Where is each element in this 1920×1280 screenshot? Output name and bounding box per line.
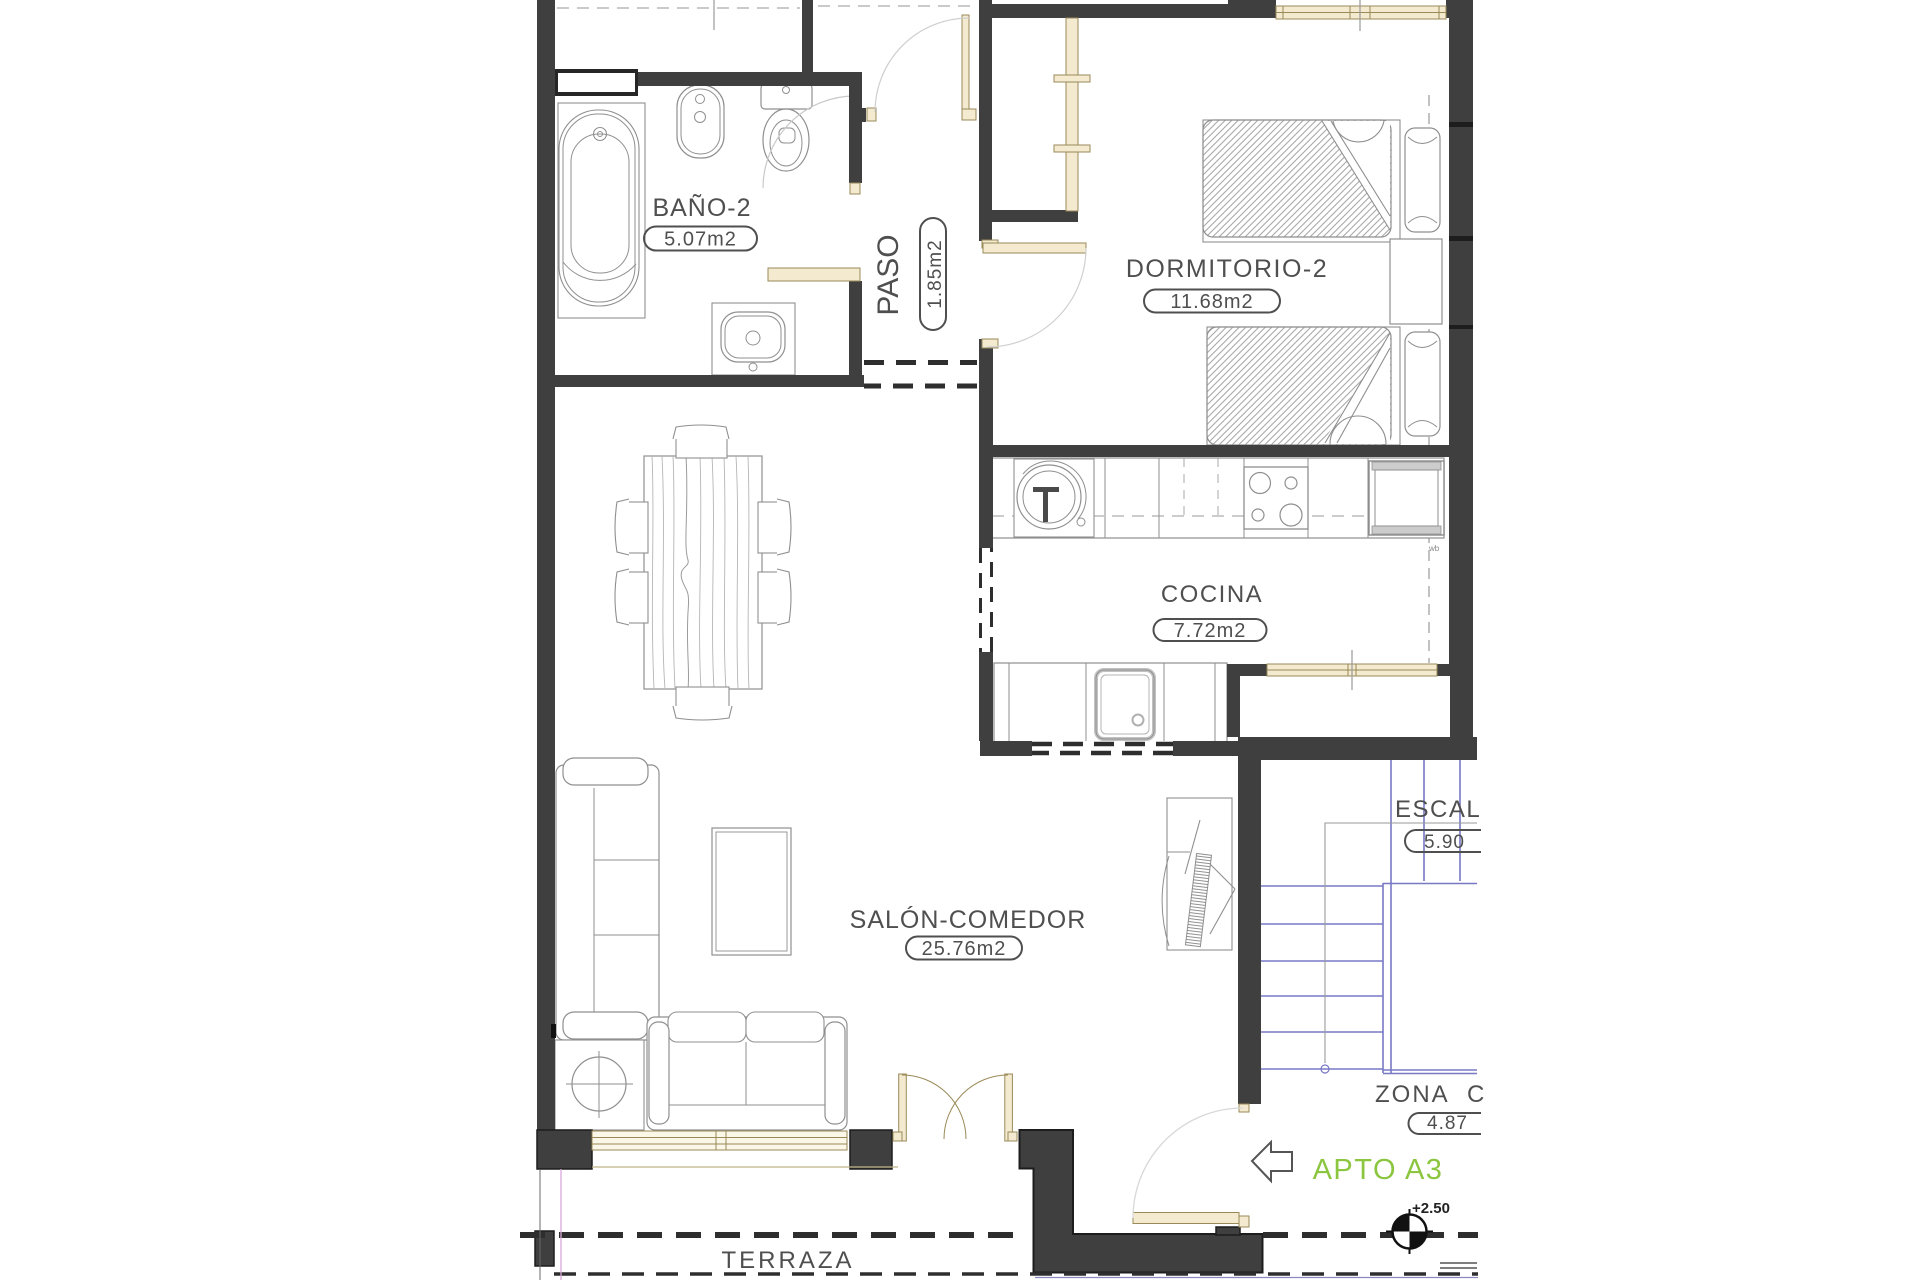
- svg-text:7.72m2: 7.72m2: [1174, 620, 1247, 642]
- svg-text:11.68m2: 11.68m2: [1170, 291, 1253, 313]
- svg-text:BAÑO-2: BAÑO-2: [652, 193, 751, 222]
- svg-text:DORMITORIO-2: DORMITORIO-2: [1126, 255, 1328, 283]
- svg-text:PASO: PASO: [872, 234, 905, 315]
- svg-text:SALÓN-COMEDOR: SALÓN-COMEDOR: [850, 905, 1087, 934]
- svg-text:ZONA C: ZONA C: [1375, 1081, 1486, 1108]
- svg-text:ESCAL: ESCAL: [1395, 796, 1481, 823]
- svg-text:APTO A3: APTO A3: [1313, 1154, 1444, 1186]
- svg-text:wb: wb: [1428, 544, 1440, 553]
- svg-text:+2.50: +2.50: [1412, 1200, 1450, 1217]
- svg-text:TERRAZA: TERRAZA: [721, 1247, 854, 1274]
- svg-text:5.07m2: 5.07m2: [664, 229, 737, 251]
- svg-text:1.85m2: 1.85m2: [925, 239, 946, 308]
- svg-text:5.90: 5.90: [1424, 832, 1465, 853]
- svg-text:25.76m2: 25.76m2: [922, 938, 1007, 960]
- svg-text:4.87: 4.87: [1427, 1113, 1468, 1134]
- svg-text:COCINA: COCINA: [1161, 581, 1263, 608]
